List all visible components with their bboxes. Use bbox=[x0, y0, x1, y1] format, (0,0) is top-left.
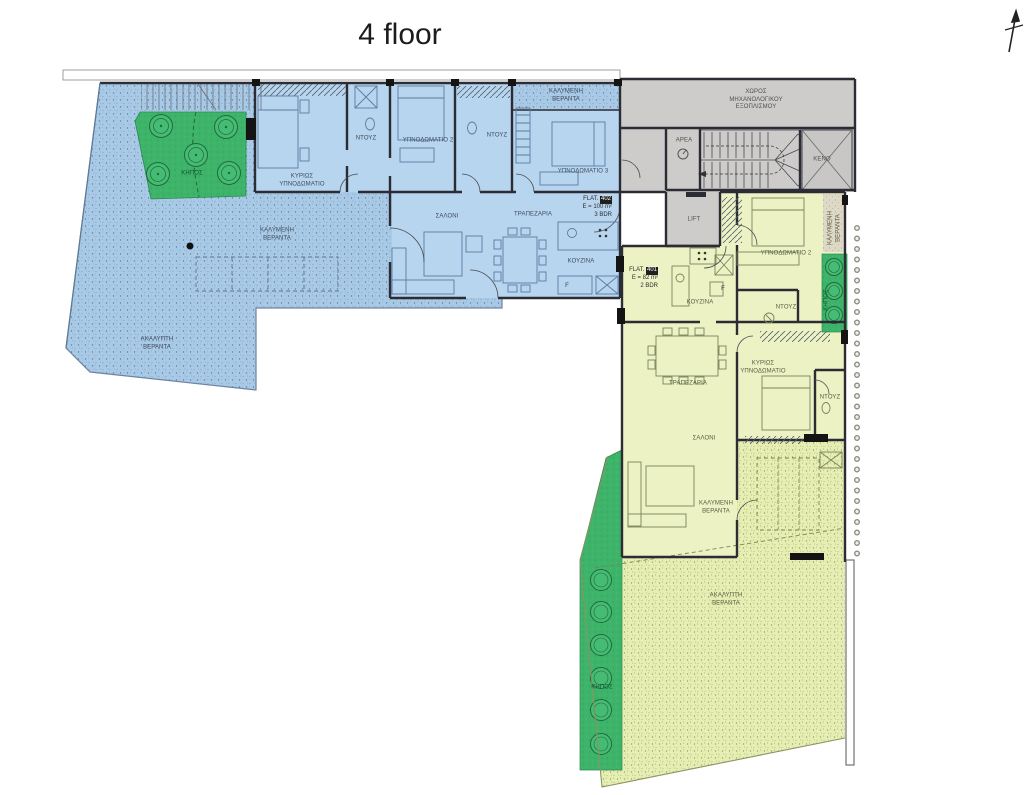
label-yellow-living: ΣΑΛΟΝΙ bbox=[693, 435, 716, 443]
label-yellow-shower-1: ΝΤΟΥΖ bbox=[776, 304, 797, 312]
label-yellow-kitchen: ΚΟΥΖΙΝΑ bbox=[687, 299, 714, 307]
label-yellow-covered-veranda-side: ΚΑΛΥΜΕΝΗ ΒΕΡΑΝΤΑ bbox=[828, 208, 843, 248]
label-blue-bedroom-3: ΥΠΝΟΔΩΜΑΤΙΟ 3 bbox=[558, 168, 609, 176]
flat-401-info: FLAT. 401 E = 82 m² 2 BDR bbox=[618, 267, 658, 290]
label-yellow-covered-veranda: ΚΑΛΥΜΕΝΗ ΒΕΡΑΝΤΑ bbox=[693, 501, 739, 516]
label-blue-shower-1: ΝΤΟΥΖ bbox=[356, 135, 377, 143]
label-blue-living: ΣΑΛΟΝΙ bbox=[436, 213, 459, 221]
floor-plan-page: 4 floor bbox=[0, 0, 1024, 795]
label-fridge-yellow: F bbox=[721, 286, 725, 292]
north-arrow-icon bbox=[1005, 11, 1023, 52]
label-yellow-shower-2: ΝΤΟΥΖ bbox=[820, 394, 841, 402]
flat-402-name: FLAT. bbox=[583, 196, 598, 202]
flat-402-info: FLAT. 402 E = 100 m² 3 BDR bbox=[566, 196, 612, 219]
yellow-living-room bbox=[622, 430, 737, 557]
label-blue-master-bedroom: ΚΥΡΙΩΣ ΥΠΝΟΔΩΜΑΤΙΟ bbox=[275, 174, 329, 189]
garden-strip-bottom bbox=[580, 450, 622, 770]
roof-parapet bbox=[63, 70, 620, 80]
label-blue-covered-veranda-top: ΚΑΛΥΜΕΝΗ ΒΕΡΑΝΤΑ bbox=[545, 89, 587, 104]
flat-402-beds: 3 BDR bbox=[566, 212, 612, 220]
label-fridge-blue: F bbox=[565, 283, 569, 289]
parapet-wall bbox=[846, 560, 854, 765]
label-yellow-open-veranda: ΑΚΑΛΥΠΤΗ ΒΕΡΑΝΤΑ bbox=[703, 593, 749, 608]
flat-401-name: FLAT. bbox=[629, 267, 644, 273]
label-blue-shower-2: ΝΤΟΥΖ bbox=[487, 132, 508, 140]
label-blue-dining: ΤΡΑΠΕΖΑΡΙΑ bbox=[514, 211, 552, 219]
label-blue-bedroom-2: ΥΠΝΟΔΩΜΑΤΙΟ 2 bbox=[403, 137, 454, 145]
label-yellow-master-bedroom: ΚΥΡΙΩΣ ΥΠΝΟΔΩΜΑΤΙΟ bbox=[736, 361, 790, 376]
label-blue-open-veranda: ΑΚΑΛΥΠΤΗ ΒΕΡΑΝΤΑ bbox=[135, 337, 179, 352]
lift-door bbox=[686, 192, 706, 197]
label-yellow-garden-side: ΚΗΠΟΣ bbox=[823, 289, 831, 311]
flat-402-area: E = 100 m² bbox=[566, 204, 612, 212]
label-meter-room: ΑΡΕΑ bbox=[676, 137, 692, 145]
label-lift: LIFT bbox=[688, 216, 701, 224]
terrace-dot bbox=[187, 243, 194, 250]
label-void: ΚΕΝΟ bbox=[813, 156, 830, 164]
label-yellow-garden-bottom: ΚΗΠΟΣ bbox=[591, 684, 613, 692]
label-blue-kitchen: ΚΟΥΖΙΝΑ bbox=[568, 258, 595, 266]
flat-401-beds: 2 BDR bbox=[618, 283, 658, 291]
floor-plan-drawing bbox=[0, 0, 1024, 795]
label-mechanical-room: ΧΩΡΟΣ ΜΗΧΑΝΟΛΟΓΙΚΟΥ ΕΞΟΠΛΙΣΜΟΥ bbox=[723, 89, 789, 112]
label-blue-garden: ΚΗΠΟΣ bbox=[181, 170, 203, 178]
flat-401-number: 401 bbox=[646, 267, 658, 275]
pergola-hatch bbox=[141, 84, 264, 110]
flat-401-area: E = 82 m² bbox=[618, 275, 658, 283]
label-yellow-bedroom-2: ΥΠΝΟΔΩΜΑΤΙΟ 2 bbox=[761, 250, 812, 258]
label-yellow-dining: ΤΡΑΠΕΖΑΡΙΑ bbox=[669, 380, 707, 388]
flat-402-number: 402 bbox=[600, 196, 612, 204]
label-blue-covered-veranda: ΚΑΛΥΜΕΝΗ ΒΕΡΑΝΤΑ bbox=[255, 228, 299, 243]
garden-top-left bbox=[135, 112, 246, 199]
